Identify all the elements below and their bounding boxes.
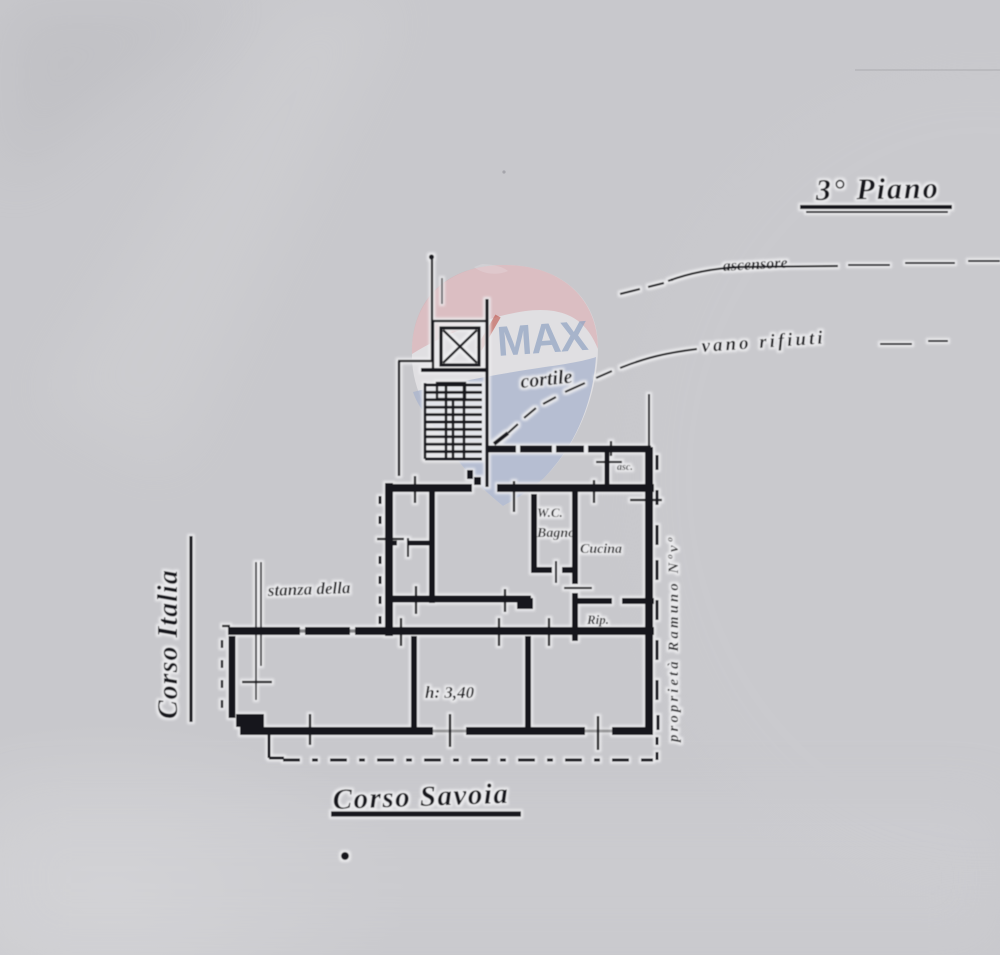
svg-text:MAX: MAX (495, 312, 589, 365)
svg-text:asc.: asc. (617, 462, 633, 473)
svg-text:stanza della: stanza della (266, 578, 351, 600)
svg-text:Rip.: Rip. (586, 612, 609, 627)
svg-text:proprietà Ramuno Nºvº: proprietà Ramuno Nºvº (666, 535, 682, 744)
svg-text:W.C.: W.C. (537, 505, 563, 520)
svg-text:ascensore: ascensore (722, 255, 788, 275)
svg-text:Cucina: Cucina (580, 542, 622, 557)
svg-text:Bagno: Bagno (536, 526, 575, 541)
svg-text:Corso Savoia: Corso Savoia (332, 778, 510, 816)
svg-text:Corso Italia: Corso Italia (153, 569, 184, 719)
svg-text:3° Piano: 3° Piano (815, 172, 940, 207)
svg-text:h: 3,40: h: 3,40 (425, 683, 475, 702)
